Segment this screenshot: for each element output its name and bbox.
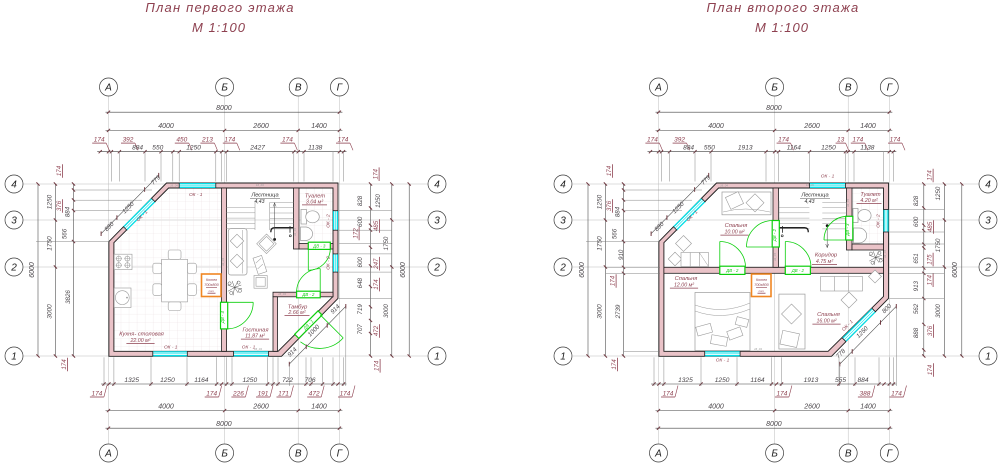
svg-text:884: 884 [615, 206, 622, 217]
svg-text:1250: 1250 [186, 145, 201, 152]
svg-text:175: 175 [927, 254, 934, 265]
svg-text:3000: 3000 [47, 304, 54, 319]
svg-text:1250: 1250 [935, 186, 942, 200]
svg-text:2: 2 [984, 262, 991, 273]
svg-text:706: 706 [305, 377, 316, 384]
svg-text:174: 174 [927, 274, 934, 285]
svg-text:М 1:100: М 1:100 [755, 20, 809, 35]
svg-text:174: 174 [663, 390, 674, 397]
svg-text:884: 884 [132, 145, 143, 152]
svg-text:1400: 1400 [311, 123, 327, 130]
svg-text:600: 600 [913, 216, 920, 227]
svg-text:Спальня: Спальня [725, 223, 748, 229]
svg-text:3: 3 [985, 215, 991, 226]
svg-text:1164: 1164 [787, 145, 802, 152]
svg-text:1: 1 [11, 351, 17, 362]
svg-text:Б: Б [221, 448, 228, 459]
svg-text:884: 884 [683, 145, 694, 152]
svg-text:174: 174 [778, 137, 789, 144]
svg-text:4.75 м²: 4.75 м² [816, 259, 833, 265]
svg-text:700х800: 700х800 [204, 283, 219, 287]
svg-text:4000: 4000 [708, 123, 724, 130]
svg-text:3000: 3000 [935, 304, 942, 318]
svg-text:4: 4 [560, 179, 566, 190]
svg-text:3: 3 [11, 215, 17, 226]
svg-text:1: 1 [434, 351, 440, 362]
svg-text:174: 174 [338, 137, 349, 144]
svg-text:1400: 1400 [860, 123, 876, 130]
svg-text:1250: 1250 [47, 194, 54, 209]
svg-text:8000: 8000 [766, 105, 782, 112]
svg-text:3000: 3000 [383, 304, 390, 318]
svg-text:174: 174 [56, 165, 63, 176]
svg-text:828: 828 [913, 195, 920, 206]
svg-text:4,43: 4,43 [804, 199, 814, 205]
svg-text:Б: Б [771, 82, 778, 93]
svg-text:472: 472 [309, 390, 320, 397]
svg-text:174: 174 [610, 275, 617, 286]
svg-text:174: 174 [647, 137, 658, 144]
svg-text:174: 174 [373, 168, 380, 179]
svg-text:6000: 6000 [29, 262, 36, 278]
svg-text:1: 1 [560, 351, 566, 362]
svg-text:6000: 6000 [579, 262, 586, 278]
svg-text:Спальня: Спальня [817, 312, 840, 318]
svg-text:Коридор: Коридор [815, 253, 837, 259]
svg-text:174: 174 [91, 390, 102, 397]
svg-text:376: 376 [606, 200, 613, 211]
svg-text:16_04: 16_04 [754, 347, 762, 351]
svg-text:888: 888 [913, 327, 920, 338]
svg-text:3: 3 [434, 215, 440, 226]
svg-text:16_04: 16_04 [293, 228, 297, 236]
svg-text:174: 174 [606, 165, 613, 176]
svg-text:16_04: 16_04 [846, 199, 850, 207]
svg-text:Спальня: Спальня [675, 276, 698, 282]
svg-text:12.00 м²: 12.00 м² [674, 283, 694, 289]
svg-text:174: 174 [224, 137, 235, 144]
svg-text:16_04: 16_04 [256, 183, 264, 187]
svg-text:910: 910 [618, 249, 625, 260]
svg-text:ОК - 1: ОК - 1 [716, 358, 730, 364]
svg-text:2.66 м²: 2.66 м² [287, 310, 305, 316]
svg-text:174: 174 [94, 137, 105, 144]
svg-text:174: 174 [927, 364, 934, 375]
svg-text:Кухня- столовая: Кухня- столовая [119, 332, 164, 338]
svg-text:10.00 м²: 10.00 м² [724, 230, 744, 236]
svg-text:1325: 1325 [124, 377, 139, 384]
svg-text:2600: 2600 [252, 403, 269, 410]
svg-text:174: 174 [927, 170, 934, 181]
svg-text:4000: 4000 [708, 403, 724, 410]
svg-text:8000: 8000 [216, 105, 232, 112]
svg-text:247: 247 [373, 258, 380, 270]
svg-text:392: 392 [674, 137, 685, 144]
svg-text:В: В [845, 448, 852, 459]
svg-text:2: 2 [433, 262, 440, 273]
svg-text:600: 600 [357, 216, 364, 227]
svg-text:ОК - 2: ОК - 2 [326, 214, 332, 228]
svg-text:550: 550 [704, 145, 715, 152]
svg-text:1325: 1325 [678, 377, 693, 384]
svg-text:2600: 2600 [803, 403, 820, 410]
svg-text:ДВ - 3: ДВ - 3 [312, 243, 326, 248]
svg-text:8000: 8000 [216, 421, 232, 428]
svg-text:16_04: 16_04 [806, 183, 814, 187]
svg-text:1138: 1138 [308, 145, 323, 152]
svg-text:2: 2 [10, 262, 17, 273]
svg-text:11,87 м²: 11,87 м² [245, 334, 265, 340]
svg-text:884: 884 [65, 206, 72, 217]
svg-text:А: А [654, 82, 662, 93]
svg-text:Котел: Котел [206, 278, 217, 282]
svg-text:174: 174 [611, 359, 618, 370]
svg-text:226: 226 [232, 390, 244, 397]
svg-text:ОК - 1: ОК - 1 [189, 192, 203, 198]
svg-text:566: 566 [612, 228, 619, 239]
svg-text:376: 376 [927, 325, 934, 336]
svg-text:174: 174 [373, 279, 380, 290]
svg-text:1250: 1250 [597, 194, 604, 209]
svg-text:550: 550 [152, 145, 163, 152]
svg-text:ДВ - 4: ДВ - 4 [220, 310, 225, 324]
svg-text:1750: 1750 [47, 236, 54, 251]
svg-text:485: 485 [373, 220, 380, 231]
svg-text:191: 191 [258, 390, 269, 397]
svg-text:213: 213 [201, 137, 213, 144]
svg-text:16.00 м²: 16.00 м² [816, 319, 836, 325]
svg-text:4: 4 [11, 179, 17, 190]
svg-text:1164: 1164 [750, 377, 765, 384]
svg-text:472: 472 [373, 325, 380, 336]
svg-text:тип.: тип. [209, 290, 215, 293]
svg-text:16_04: 16_04 [254, 347, 262, 351]
svg-text:376: 376 [56, 200, 63, 211]
svg-text:16_04: 16_04 [883, 250, 887, 258]
svg-text:174: 174 [852, 137, 863, 144]
svg-text:485: 485 [927, 221, 934, 232]
svg-text:700х800: 700х800 [754, 283, 769, 287]
svg-text:8000: 8000 [766, 421, 782, 428]
svg-text:Лестница: Лестница [250, 193, 278, 199]
svg-text:1750: 1750 [383, 236, 390, 250]
svg-text:1400: 1400 [860, 403, 876, 410]
svg-text:450: 450 [176, 137, 187, 144]
svg-text:884: 884 [857, 377, 868, 384]
svg-text:16_04: 16_04 [170, 183, 178, 187]
svg-text:392: 392 [123, 137, 134, 144]
svg-text:651: 651 [913, 253, 920, 263]
svg-text:566: 566 [62, 228, 69, 239]
svg-text:600: 600 [357, 257, 364, 268]
svg-text:ДВ - 3: ДВ - 3 [845, 223, 850, 237]
svg-text:Лестница: Лестница [800, 193, 828, 199]
svg-text:16_04: 16_04 [221, 258, 225, 266]
svg-text:1138: 1138 [860, 145, 875, 152]
svg-text:648: 648 [357, 277, 364, 288]
svg-text:171: 171 [278, 390, 289, 397]
svg-text:1750: 1750 [597, 236, 604, 251]
svg-text:555: 555 [835, 377, 846, 384]
svg-text:Б: Б [771, 448, 778, 459]
svg-text:А: А [104, 82, 112, 93]
svg-text:В: В [295, 448, 302, 459]
svg-text:913: 913 [913, 280, 920, 291]
svg-text:722: 722 [282, 377, 293, 384]
svg-text:4: 4 [985, 179, 991, 190]
svg-text:1164: 1164 [194, 377, 209, 384]
svg-text:4.20 м²: 4.20 м² [860, 198, 877, 204]
svg-text:22.00 м²: 22.00 м² [129, 338, 150, 344]
svg-text:ДВ - 2: ДВ - 2 [301, 292, 315, 297]
svg-text:1: 1 [985, 351, 991, 362]
svg-text:2: 2 [559, 262, 566, 273]
svg-text:1250: 1250 [160, 377, 175, 384]
svg-text:3826: 3826 [65, 290, 72, 304]
svg-text:ОК - 1: ОК - 1 [821, 174, 835, 180]
svg-text:4,43: 4,43 [254, 199, 264, 205]
svg-text:2600: 2600 [803, 123, 820, 130]
svg-text:3: 3 [560, 215, 566, 226]
svg-text:1400: 1400 [311, 403, 327, 410]
svg-text:6000: 6000 [400, 262, 407, 278]
svg-text:А: А [654, 448, 662, 459]
svg-text:16_04: 16_04 [720, 183, 728, 187]
svg-text:707: 707 [357, 324, 364, 335]
svg-text:1750: 1750 [935, 238, 942, 252]
svg-text:388: 388 [859, 390, 870, 397]
svg-text:174: 174 [61, 359, 68, 370]
svg-text:16_04: 16_04 [773, 253, 777, 261]
svg-text:4000: 4000 [158, 403, 174, 410]
svg-text:16_04: 16_04 [278, 292, 286, 296]
svg-text:План второго этажа: План второго этажа [707, 0, 860, 15]
svg-text:План первого этажа: План первого этажа [145, 0, 294, 15]
svg-text:ДВ - 2: ДВ - 2 [772, 229, 777, 243]
svg-text:1913: 1913 [804, 377, 819, 384]
svg-text:174: 174 [890, 137, 901, 144]
svg-text:174: 174 [374, 360, 381, 371]
svg-text:В: В [845, 82, 852, 93]
svg-text:174: 174 [206, 390, 217, 397]
svg-text:тип.: тип. [759, 290, 765, 293]
svg-text:2600: 2600 [252, 123, 269, 130]
svg-text:Б: Б [221, 82, 228, 93]
svg-text:2739: 2739 [615, 304, 622, 319]
svg-text:4000: 4000 [158, 123, 174, 130]
svg-text:М 1:100: М 1:100 [192, 20, 246, 35]
svg-text:4: 4 [434, 179, 440, 190]
svg-text:562: 562 [913, 303, 920, 314]
svg-text:3000: 3000 [597, 304, 604, 319]
svg-text:В: В [295, 82, 302, 93]
svg-text:Котел: Котел [756, 278, 767, 282]
svg-text:174: 174 [776, 390, 787, 397]
svg-text:ОК - 2: ОК - 2 [876, 214, 882, 228]
svg-text:А: А [104, 448, 112, 459]
svg-text:174: 174 [891, 390, 902, 397]
svg-text:ОК - 2: ОК - 2 [326, 256, 332, 270]
svg-text:1250: 1250 [242, 377, 257, 384]
svg-text:172: 172 [353, 228, 360, 239]
svg-text:6000: 6000 [952, 262, 959, 278]
svg-text:1913: 1913 [738, 145, 753, 152]
svg-text:ДВ - 2: ДВ - 2 [791, 268, 805, 273]
svg-text:3.04 м²: 3.04 м² [306, 199, 323, 205]
svg-text:719: 719 [357, 304, 364, 315]
svg-text:13: 13 [837, 137, 845, 144]
svg-text:ОК - 1: ОК - 1 [164, 345, 178, 351]
svg-text:2427: 2427 [249, 145, 265, 152]
svg-text:174: 174 [340, 390, 351, 397]
svg-text:1250: 1250 [821, 145, 836, 152]
svg-text:828: 828 [357, 195, 364, 206]
svg-text:1250: 1250 [375, 194, 382, 208]
svg-text:1250: 1250 [715, 377, 730, 384]
svg-text:ДВ - 2: ДВ - 2 [725, 268, 739, 273]
svg-text:174: 174 [282, 137, 293, 144]
